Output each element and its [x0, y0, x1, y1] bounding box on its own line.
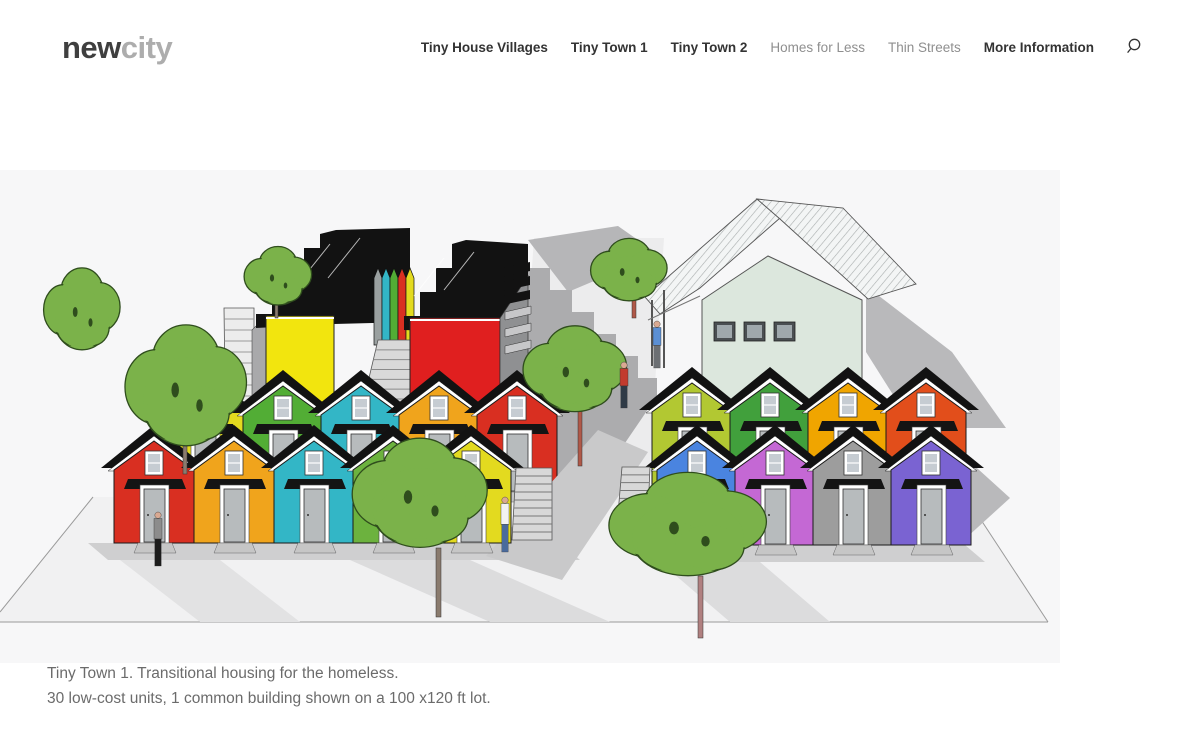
nav-item-more-information[interactable]: More Information	[984, 41, 1094, 55]
figure-caption: Tiny Town 1. Transitional housing for th…	[47, 661, 491, 711]
nav-item-homes-for-less[interactable]: Homes for Less	[770, 41, 865, 55]
village-illustration	[0, 170, 1060, 663]
logo-part-light: city	[121, 30, 172, 65]
nav-item-tiny-house-villages[interactable]: Tiny House Villages	[421, 41, 548, 55]
nav-item-tiny-town-2[interactable]: Tiny Town 2	[671, 41, 748, 55]
main-nav: Tiny House VillagesTiny Town 1Tiny Town …	[421, 37, 1144, 59]
scene-root	[0, 170, 1060, 663]
nav-item-thin-streets[interactable]: Thin Streets	[888, 41, 961, 55]
site-header: newcity Tiny House VillagesTiny Town 1Ti…	[0, 0, 1200, 95]
nav-item-tiny-town-1[interactable]: Tiny Town 1	[571, 41, 648, 55]
caption-line-1: Tiny Town 1. Transitional housing for th…	[47, 661, 491, 686]
caption-line-2: 30 low-cost units, 1 common building sho…	[47, 686, 491, 711]
village-figure	[0, 170, 1060, 663]
logo-part-dark: new	[62, 30, 121, 65]
search-button[interactable]	[1125, 37, 1144, 59]
search-icon	[1125, 37, 1144, 59]
site-logo[interactable]: newcity	[62, 30, 172, 66]
